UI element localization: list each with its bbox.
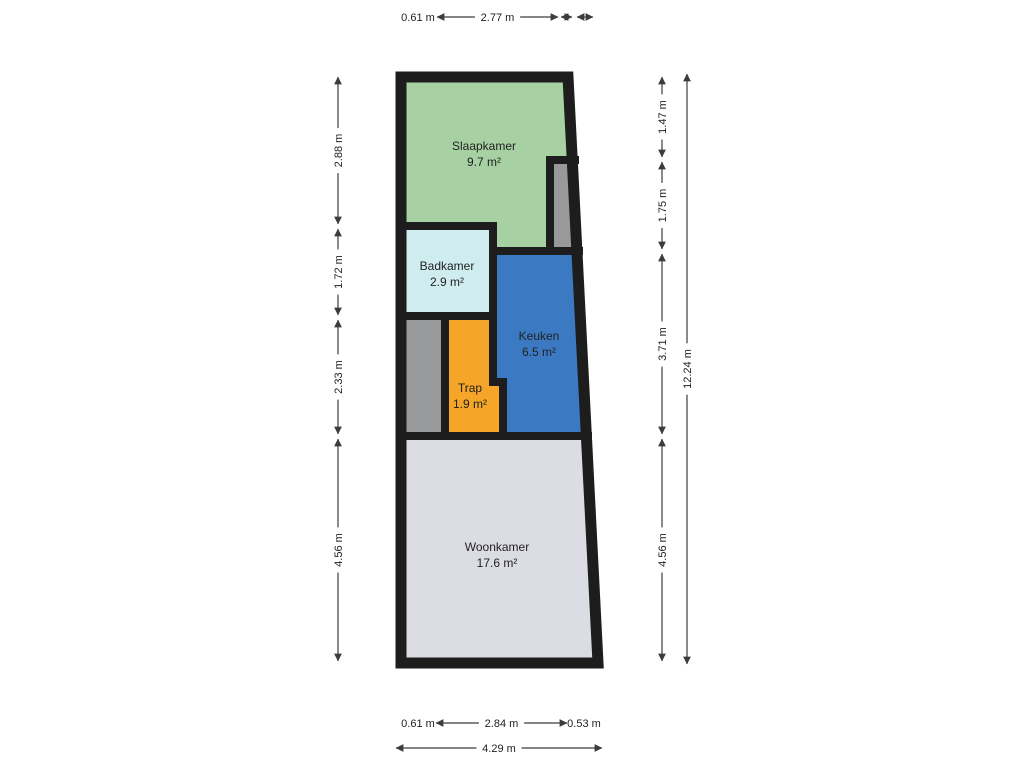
dimension-13: 0.61 m (401, 718, 435, 730)
dimension-1: 2.77 m (437, 10, 558, 24)
dimension-label-14: 2.84 m (485, 718, 519, 730)
dimension-0: 0.61 m (401, 12, 435, 24)
dimension-label-13: 0.61 m (401, 718, 435, 730)
room-name-slaapkamer: Slaapkamer (452, 139, 516, 153)
room-area-badkamer: 2.9 m² (430, 275, 464, 289)
room-name-trap: Trap (458, 381, 483, 395)
dimension-label-5: 1.72 m (333, 255, 345, 289)
room-name-badkamer: Badkamer (420, 259, 475, 273)
dimension-label-4: 2.88 m (333, 134, 345, 168)
dimension-label-11: 4.56 m (657, 533, 669, 567)
dimension-9: 1.75 m (655, 162, 669, 249)
dimension-label-15: 0.53 m (567, 718, 601, 730)
dimension-label-8: 1.47 m (657, 100, 669, 134)
dimension-label-7: 4.56 m (333, 533, 345, 567)
dimension-16: 4.29 m (396, 741, 602, 755)
dimension-14: 2.84 m (436, 716, 567, 730)
dimension-label-12: 12.24 m (682, 349, 694, 389)
dimension-8: 1.47 m (655, 77, 669, 157)
room-area-woonkamer: 17.6 m² (477, 556, 518, 570)
dimension-label-9: 1.75 m (657, 189, 669, 223)
dimension-label-6: 2.33 m (333, 360, 345, 394)
dimension-15: 0.53 m (567, 718, 601, 730)
dimension-12: 12.24 m (680, 74, 694, 664)
room-shaft-left (401, 316, 445, 436)
dimension-10: 3.71 m (655, 254, 669, 434)
dimension-6: 2.33 m (331, 320, 345, 434)
room-badkamer: Badkamer2.9 m² (401, 226, 493, 316)
dimension-11: 4.56 m (655, 439, 669, 661)
dimension-label-1: 2.77 m (481, 12, 515, 24)
floorplan-drawing: Slaapkamer9.7 m²Badkamer2.9 m²Keuken6.5 … (0, 0, 1024, 768)
room-name-keuken: Keuken (519, 329, 560, 343)
dimension-label-16: 4.29 m (482, 743, 516, 755)
room-area-keuken: 6.5 m² (522, 345, 556, 359)
dimension-label-0: 0.61 m (401, 12, 435, 24)
floorplan-page: Slaapkamer9.7 m²Badkamer2.9 m²Keuken6.5 … (0, 0, 1024, 768)
room-woonkamer: Woonkamer17.6 m² (401, 436, 598, 663)
room-area-trap: 1.9 m² (453, 397, 487, 411)
dimension-5: 1.72 m (331, 229, 345, 315)
room-area-slaapkamer: 9.7 m² (467, 155, 501, 169)
dimension-4: 2.88 m (331, 77, 345, 224)
dimension-7: 4.56 m (331, 439, 345, 661)
room-shape-shaft-left (401, 316, 445, 436)
room-name-woonkamer: Woonkamer (465, 540, 529, 554)
dimension-label-10: 3.71 m (657, 327, 669, 361)
